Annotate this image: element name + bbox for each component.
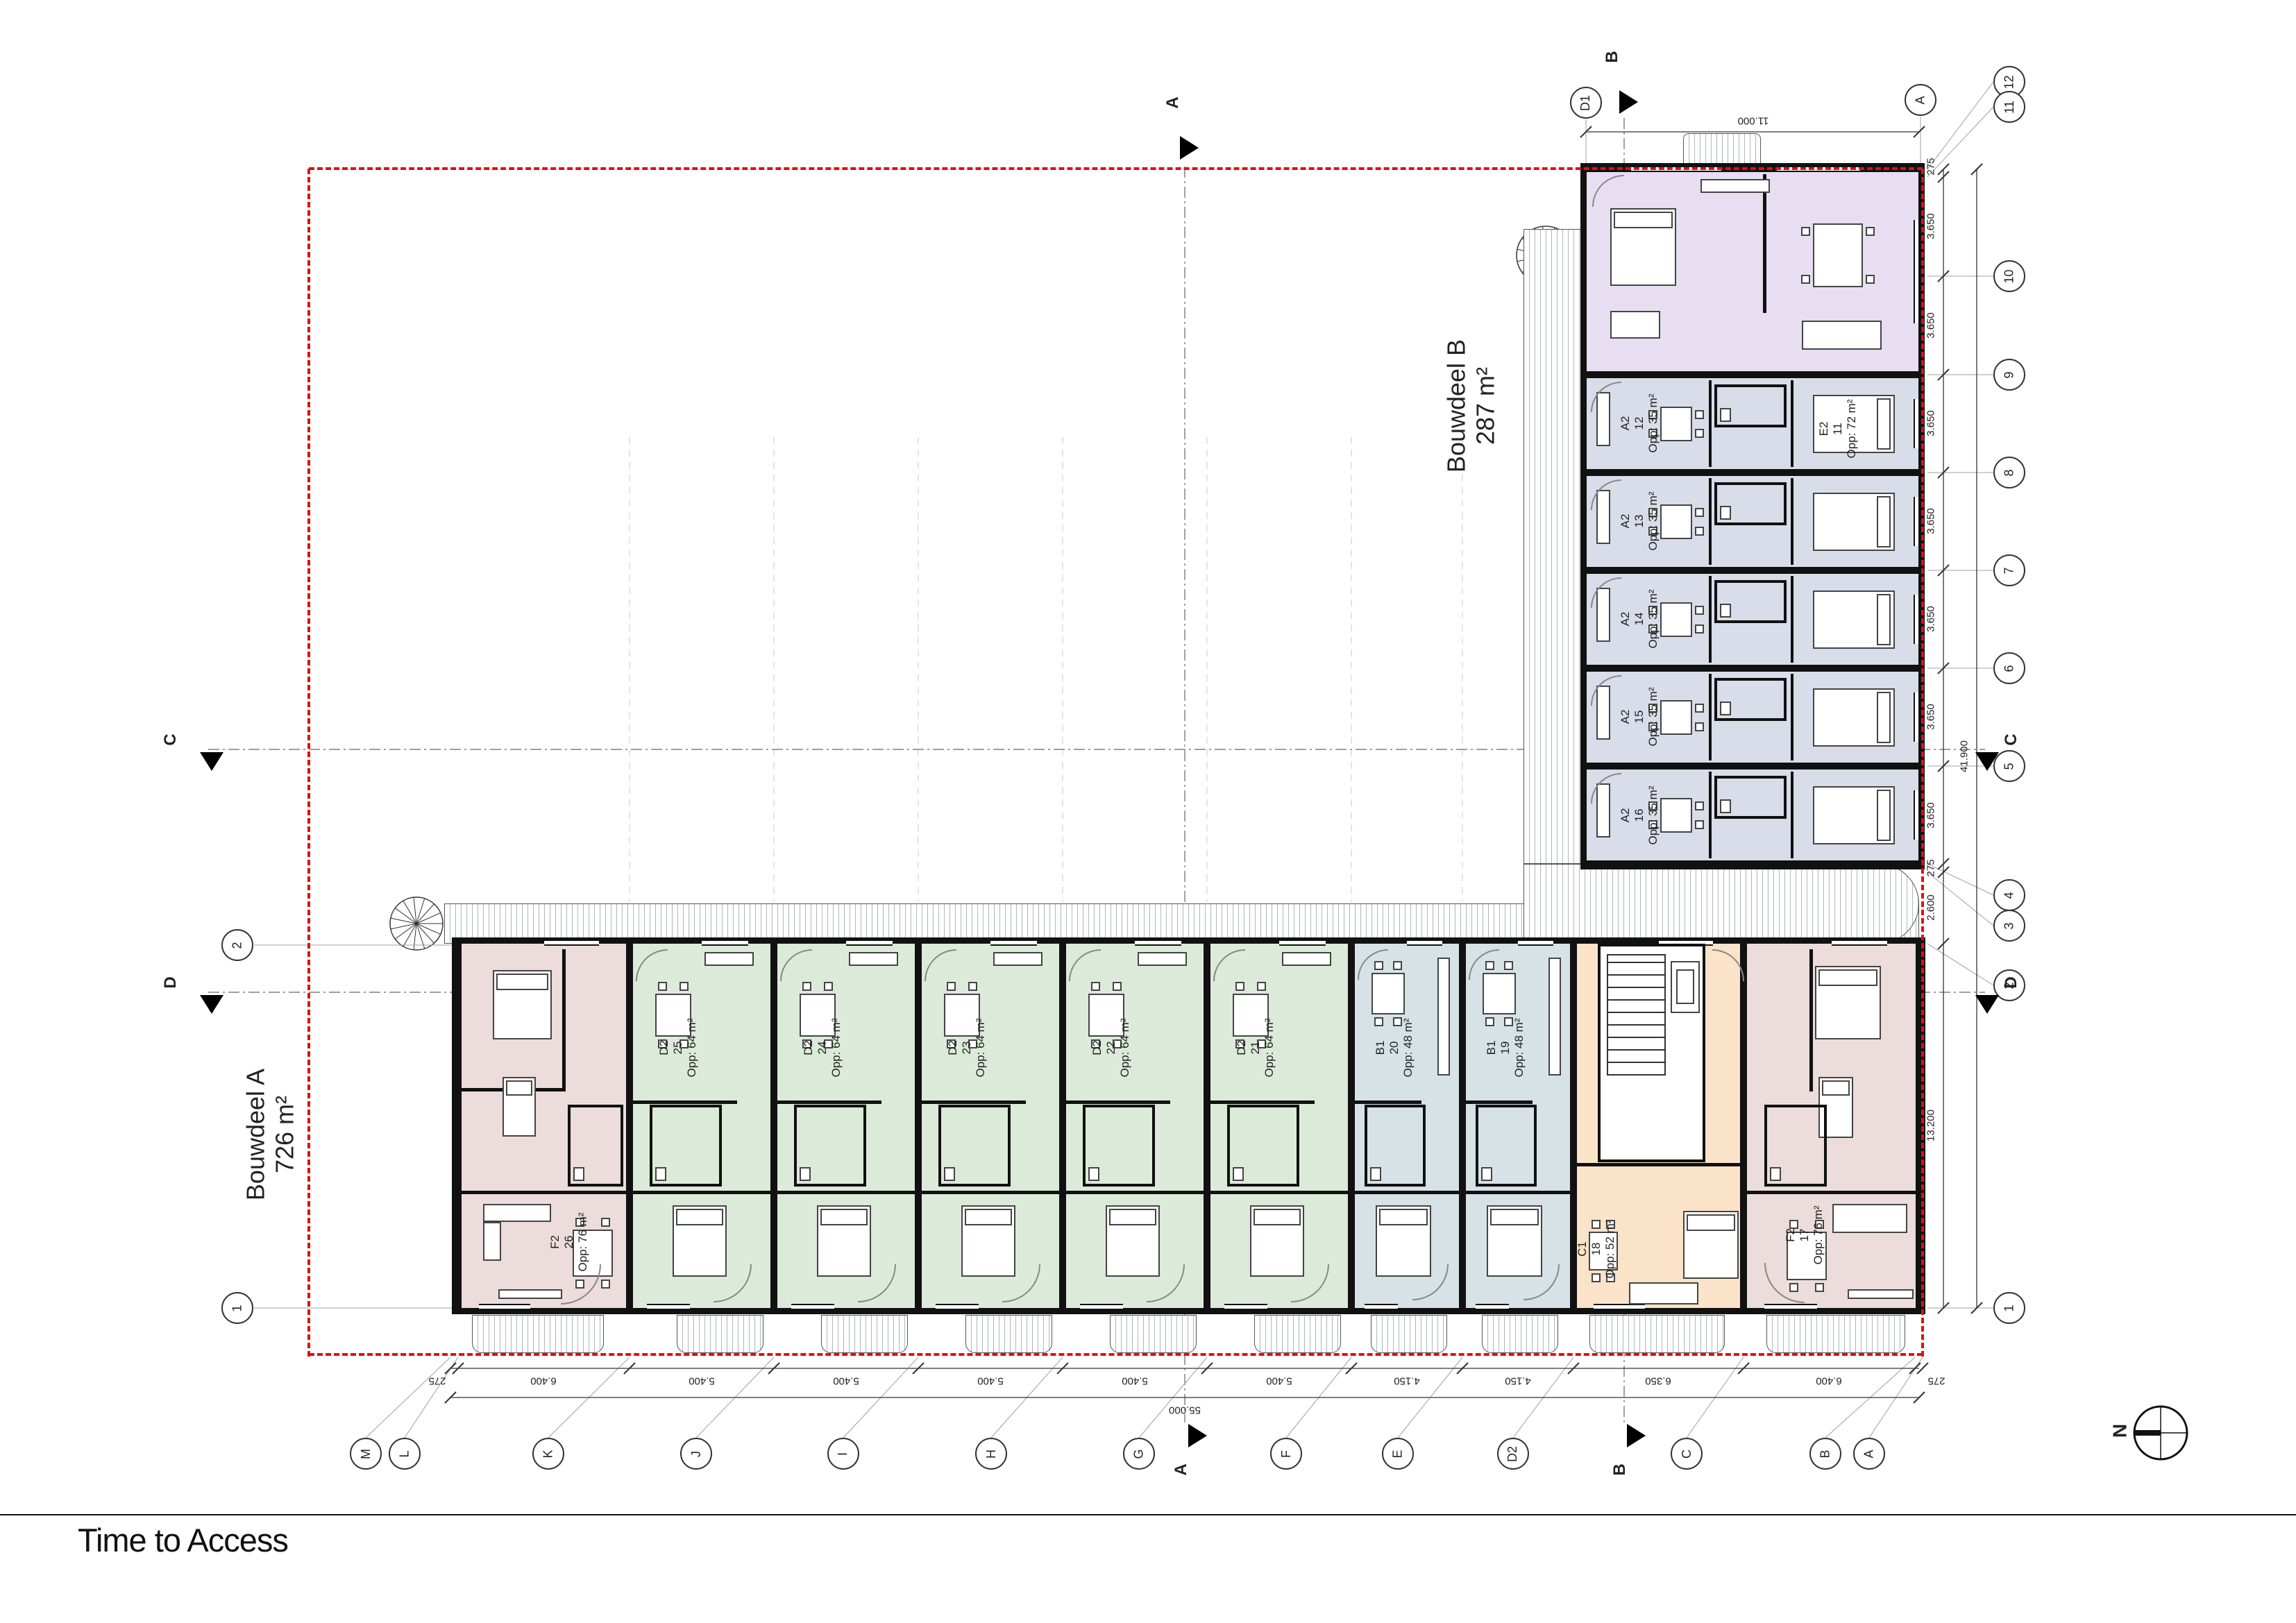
bed-pillow [1877,790,1891,841]
north-label-line: N [2108,1424,2131,1438]
bed-pillow [676,1209,723,1225]
section-arrow [200,995,223,1014]
unit-label-C1-18-line: C1 [1576,1219,1589,1278]
bed-pillow [506,1080,532,1096]
unit-label-D2-24-line: 24 [816,1018,829,1077]
grid-bubble-G: G [1123,1438,1155,1470]
chair [968,982,977,991]
grid-bubble-3-label: 3 [2002,922,2016,929]
grid-bubble-8: 8 [1993,457,2025,488]
grid-bubble-6: 6 [1993,652,2025,684]
unit-label-D2-22: D222Opp: 64 m² [1090,1018,1132,1077]
toilet [1770,1167,1781,1181]
unit-label-A2-14-line: Opp: 35 m² [1646,589,1660,648]
interior-wall [777,1191,915,1194]
balcony [472,1315,604,1353]
window [1594,1304,1645,1310]
unit-label-C1-18: C118Opp: 52 m² [1576,1219,1617,1278]
grid-bubble-F-label: F [1279,1450,1294,1458]
dining-table [1813,223,1863,287]
chair [947,982,956,991]
interior-wall [633,1101,737,1104]
window [647,1304,690,1310]
sofa [704,952,754,966]
dim-top: 11.000 [1738,115,1769,127]
chair [1695,624,1704,634]
chair [1695,801,1704,810]
dim-bottom-9: 6.350 [1645,1375,1671,1387]
chair [1695,820,1704,829]
grid-bubble-E: E [1382,1438,1414,1470]
unit-label-A2-16-line: 16 [1632,785,1646,844]
plot-boundary [309,167,1923,170]
plot-boundary [309,1353,1923,1356]
dim-right-6: 3.650 [1925,704,1937,730]
grid-bubble-K-label: K [541,1450,555,1458]
bed-pillow [965,1209,1012,1225]
dim-right-10: 13.200 [1925,1110,1937,1141]
unit-label-A2-14-line: A2 [1619,589,1632,648]
unit-label-A2-12: A212Opp: 35 m² [1619,393,1660,452]
balcony [821,1315,908,1353]
unit-label-F2-26-line: 26 [562,1212,576,1271]
interior-wall [562,949,566,1091]
unit-label-D2-21-line: Opp: 64 m² [1263,1018,1276,1077]
grid-bubble-A-label: A [1862,1450,1876,1458]
grid-bubble-I-label: I [836,1452,850,1455]
section-label-C: C [161,733,180,745]
section-arrow [1619,90,1638,114]
dining-table [1660,700,1692,735]
window [1476,1304,1509,1310]
chair [1695,508,1704,517]
grid-bubble-10-label: 10 [2002,269,2017,283]
interior-wall [1747,1191,1916,1194]
grid-bubble-12-label: 12 [2002,75,2017,89]
grid-bubble-M: M [350,1438,382,1470]
grid-bubble-8-label: 8 [2002,469,2016,476]
interior-wall [633,1191,770,1194]
unit-label-D2-23-line: 23 [960,1018,974,1077]
plot-boundary [307,169,310,1357]
grid-bubble-D2: D2 [1497,1438,1529,1470]
bed-pillow [1877,398,1891,450]
grid-bubble-J-label: J [689,1451,704,1457]
chair [1393,961,1402,970]
unit-label-B1-20: B120Opp: 48 m² [1374,1018,1415,1077]
dim-bottom-total: 55.000 [1169,1404,1201,1416]
interior-wall [1709,674,1712,760]
sideboard [498,1289,562,1299]
unit-label-B1-19-line: 19 [1499,1018,1512,1077]
section-label-D-line: D [161,976,180,988]
chair [1866,275,1875,284]
toilet [1481,1167,1492,1181]
interior-wall [1709,380,1712,467]
unit-label-B1-20-line: B1 [1374,1018,1387,1077]
toilet [1720,408,1731,422]
section-label-D-line: D [2002,976,2021,988]
bed-pillow [1822,1080,1850,1096]
bed-pillow [1877,496,1891,547]
toilet [1370,1167,1381,1181]
sofa [1138,952,1187,966]
grid-bubble-L-label: L [397,1450,412,1457]
grid-bubble-L: L [389,1438,421,1470]
sofa [993,952,1043,966]
floor-plan-sheet: Bouwdeel A726 m²Bouwdeel B287 m²F226Opp:… [0,0,2296,1623]
unit-label-A2-13: A213Opp: 35 m² [1619,491,1660,550]
section-label-A: A [1172,1463,1191,1475]
chair [1695,606,1704,615]
window [544,940,599,946]
section-arrow [1188,1424,1207,1447]
window [1914,595,1920,644]
interior-wall [1791,478,1793,565]
grid-bubble-M-label: M [359,1449,373,1459]
window [1914,399,1920,448]
kitchen-counter [1548,958,1561,1076]
chair [1113,982,1122,991]
grid-bubble-4-label: 4 [2002,892,2016,899]
section-label-C-line: C [2002,733,2021,745]
chair [601,1280,610,1289]
window [1914,220,1920,323]
interior-wall [1791,576,1793,663]
elevator-car [1676,969,1694,1004]
dim-right-3: 3.650 [1925,410,1937,436]
window [1518,940,1553,946]
interior-wall [1210,1101,1315,1104]
unit-label-D2-22-line: D2 [1090,1018,1104,1077]
window [1407,940,1442,946]
dim-bottom-2: 5.400 [689,1375,715,1387]
window [936,1304,979,1310]
gallery-walkway [1523,229,1586,864]
unit-label-A2-12-line: Opp: 35 m² [1646,393,1660,452]
sofa [1629,1282,1698,1305]
bed-pillow [1109,1209,1156,1225]
grid-bubble-D1-label: D1 [1578,94,1593,110]
building-label-B-line: 287 m² [1471,339,1501,473]
grid-bubble-7-label: 7 [2002,567,2016,574]
interior-wall [1709,576,1712,663]
toilet [1233,1167,1244,1181]
grid-bubble-2-left: 2 [221,929,253,961]
bed-pillow [1687,1214,1735,1231]
dim-right-2: 3.650 [1925,312,1937,339]
window [791,1304,834,1310]
unit-label-A2-15-line: 15 [1632,687,1646,746]
chair [1866,227,1875,236]
toilet [1720,506,1731,520]
interior-wall [1355,1191,1459,1194]
interior-wall [462,1191,626,1194]
dim-bottom-6: 5.400 [1266,1375,1292,1387]
dim-right-8: 275 [1925,859,1937,876]
grid-bubble-G-label: G [1131,1449,1146,1459]
grid-bubble-E-label: E [1390,1450,1405,1458]
sofa [1802,321,1882,350]
balcony [1110,1315,1197,1353]
chair [679,982,689,991]
toilet [1720,702,1731,715]
dim-bottom-1: 6.400 [530,1375,557,1387]
grid-bubble-3: 3 [1993,910,2025,942]
unit-label-A2-16-line: A2 [1619,785,1632,844]
section-label-D: D [2002,976,2021,988]
interior-wall [922,1191,1059,1194]
balcony [1589,1315,1725,1353]
sofa [1832,1204,1907,1233]
building-label-B: Bouwdeel B287 m² [1442,339,1501,473]
grid-bubble-10: 10 [1993,260,2025,292]
building-label-A-line: 726 m² [271,1069,300,1200]
section-arrow [1975,995,1999,1014]
dim-right-total: 41.900 [1959,740,1970,772]
section-label-C-line: C [161,733,180,745]
chair [824,982,833,991]
kitchen-counter [1437,958,1450,1076]
chair [1257,982,1266,991]
building-label-B-line: Bouwdeel B [1442,339,1471,473]
grid-bubble-B-label: B [1818,1450,1832,1458]
interior-wall [1791,380,1793,467]
dim-right-5: 3.650 [1925,606,1937,632]
bed-pillow [820,1209,868,1225]
unit-label-C1-18-line: Opp: 52 m² [1603,1219,1617,1278]
plot-boundary [1921,169,1924,1357]
window [846,940,893,946]
unit-label-F2-17: F217Opp: 76 m² [1784,1205,1825,1264]
wardrobe [1610,311,1660,339]
dining-table [1660,407,1692,441]
bed-pillow [1253,1209,1301,1225]
unit-label-D2-25-line: D2 [657,1018,671,1077]
bed-pillow [1379,1209,1428,1225]
window [1365,1304,1398,1310]
unit-label-B1-19-line: Opp: 48 m² [1512,1018,1526,1077]
interior-wall [1709,772,1712,858]
unit-label-D2-21-line: D2 [1235,1018,1249,1077]
section-label-C: C [2002,733,2021,745]
unit-label-E2-11: E211Opp: 72 m² [1817,399,1859,458]
unit-label-A2-12-line: A2 [1619,393,1632,452]
unit-label-D2-25: D225Opp: 64 m² [657,1018,699,1077]
window [1135,940,1181,946]
grid-bubble-9-label: 9 [2002,371,2016,378]
balcony [677,1315,763,1353]
sideboard [1848,1289,1914,1299]
grid-bubble-K: K [532,1438,564,1470]
kitchen-counter [1700,179,1770,193]
unit-label-A2-13-line: A2 [1619,491,1632,550]
unit-label-A2-15-line: Opp: 35 m² [1646,687,1660,746]
chair [1695,527,1704,536]
sofa [483,1204,551,1222]
chair [802,982,811,991]
dim-right-7: 3.650 [1925,802,1937,829]
unit-label-D2-21: D221Opp: 64 m² [1235,1018,1276,1077]
grid-bubble-11: 11 [1993,91,2025,123]
dim-bottom-4: 5.400 [977,1375,1004,1387]
dim-right-1: 3.650 [1925,213,1937,239]
section-arrow [1180,136,1199,160]
sofa [1282,952,1331,966]
unit-label-F2-17-line: F2 [1784,1205,1798,1264]
unit-label-E2-11-line: 11 [1831,399,1845,458]
chair [1695,704,1704,713]
section-arrow [200,752,223,771]
unit-label-E2-11-line: E2 [1817,399,1831,458]
interior-wall [1577,1163,1740,1166]
grid-bubble-H: H [975,1438,1007,1470]
section-label-A: A [1163,96,1183,108]
unit-label-D2-23-line: D2 [946,1018,960,1077]
title-block: Time to Access Projectnummer:ACQ90Projec… [0,1514,2296,1623]
dim-bottom-0: 275 [428,1375,446,1387]
bed-pillow [1490,1209,1539,1225]
grid-bubble-5-label: 5 [2002,763,2016,770]
unit-label-D2-21-line: 21 [1249,1018,1263,1077]
dim-bottom-11: 275 [1927,1375,1945,1387]
grid-bubble-A-top-label: A [1913,96,1927,104]
building-label-A-line: Bouwdeel A [242,1069,271,1200]
bed-pillow [496,974,548,990]
interior-wall [1763,174,1766,313]
bed-pillow [1877,594,1891,645]
unit-label-A2-13-line: 13 [1632,491,1646,550]
unit-label-A2-14-line: 14 [1632,589,1646,648]
bed-pillow [1877,692,1891,743]
toilet [944,1167,955,1181]
unit-label-A2-16: A216Opp: 35 m² [1619,785,1660,844]
section-label-A-line: A [1163,96,1183,108]
unit-label-D2-24-line: Opp: 64 m² [829,1018,843,1077]
chair [1504,961,1513,970]
window [1224,1304,1267,1310]
grid-bubble-1-left-label: 1 [230,1305,244,1311]
grid-bubble-D1: D1 [1570,87,1602,119]
window [1080,1304,1123,1310]
dim-right-0: 275 [1925,158,1937,175]
dim-bottom-7: 4.150 [1394,1375,1420,1387]
chair [658,982,667,991]
interior-wall [922,1101,1026,1104]
chair [601,1218,610,1227]
interior-wall [1709,478,1712,565]
unit-label-B1-19-line: B1 [1485,1018,1499,1077]
unit-label-B1-19: B119Opp: 48 m² [1485,1018,1526,1077]
unit-label-F2-26-line: Opp: 76 m² [576,1212,590,1271]
section-arrow [1975,752,1999,771]
window [1764,1304,1817,1310]
section-label-B: B [1610,1463,1630,1475]
dining-table [1660,602,1692,637]
dining-table [1660,504,1692,539]
dining-table [1660,798,1692,833]
unit-label-D2-25-line: Opp: 64 m² [685,1018,699,1077]
unit-label-B1-20-line: 20 [1387,1018,1401,1077]
interior-wall [1066,1191,1204,1194]
toilet [573,1167,584,1181]
balcony [965,1315,1052,1353]
unit-label-A2-16-line: Opp: 35 m² [1646,785,1660,844]
window [990,940,1037,946]
interior-wall [1791,772,1793,858]
unit-label-D2-22-line: Opp: 64 m² [1118,1018,1132,1077]
grid-bubble-B: B [1809,1438,1841,1470]
window [1914,790,1920,840]
dim-bottom-5: 5.400 [1122,1375,1148,1387]
sofa [483,1222,501,1261]
unit-label-A2-12-line: 12 [1632,393,1646,452]
interior-wall [777,1101,881,1104]
company-logo: Time to Access [78,1521,288,1559]
window [702,940,748,946]
grid-bubble-J: J [680,1438,712,1470]
interior-wall [1066,1101,1170,1104]
unit-label-F2-17-line: 17 [1798,1205,1812,1264]
gallery-walkway [1523,864,1919,944]
bed-pillow [1614,212,1673,228]
window [1914,692,1920,742]
section-label-B-line: B [1603,51,1622,62]
interior-wall [1355,1101,1421,1104]
window [1279,940,1326,946]
grid-bubble-A: A [1853,1438,1885,1470]
grid-bubble-I: I [827,1438,859,1470]
grid-bubble-1-left: 1 [221,1292,253,1324]
grid-bubble-C: C [1671,1438,1703,1470]
unit-label-D2-24: D224Opp: 64 m² [802,1018,843,1077]
grid-bubble-1: 1 [1993,1292,2025,1324]
stair-flight [1607,954,1666,1076]
dim-right-9: 2.600 [1925,894,1937,921]
section-label-B-line: B [1610,1463,1630,1475]
dim-bottom-3: 5.400 [833,1375,859,1387]
unit-label-A2-15: A215Opp: 35 m² [1619,687,1660,746]
unit-label-C1-18-line: 18 [1589,1219,1603,1278]
unit-label-A2-13-line: Opp: 35 m² [1646,491,1660,550]
section-arrow [1627,1424,1646,1447]
unit-label-D2-22-line: 22 [1104,1018,1118,1077]
chair [1801,275,1810,284]
grid-bubble-4: 4 [1993,879,2025,911]
interior-wall [1809,949,1813,1091]
grid-bubble-F: F [1270,1438,1302,1470]
balcony [1766,1315,1905,1353]
grid-bubble-11-label: 11 [2002,101,2017,114]
grid-bubble-A-top: A [1905,84,1936,116]
grid-bubble-1-label: 1 [2002,1305,2016,1311]
grid-bubble-2-left-label: 2 [230,942,244,949]
balcony [1371,1315,1447,1353]
dim-bottom-10: 6.400 [1816,1375,1842,1387]
unit-label-D2-23: D223Opp: 64 m² [946,1018,988,1077]
unit-label-F2-17-line: Opp: 76 m² [1812,1205,1825,1264]
grid-bubble-9: 9 [1993,359,2025,391]
dim-bottom-8: 4.150 [1505,1375,1531,1387]
chair [1815,1283,1824,1292]
unit-label-A2-14: A214Opp: 35 m² [1619,589,1660,648]
window [1914,497,1920,546]
window [479,1304,530,1310]
chair [1695,429,1704,438]
grid-bubble-7: 7 [1993,554,2025,586]
toilet [1720,604,1731,618]
section-label-B: B [1603,51,1622,62]
